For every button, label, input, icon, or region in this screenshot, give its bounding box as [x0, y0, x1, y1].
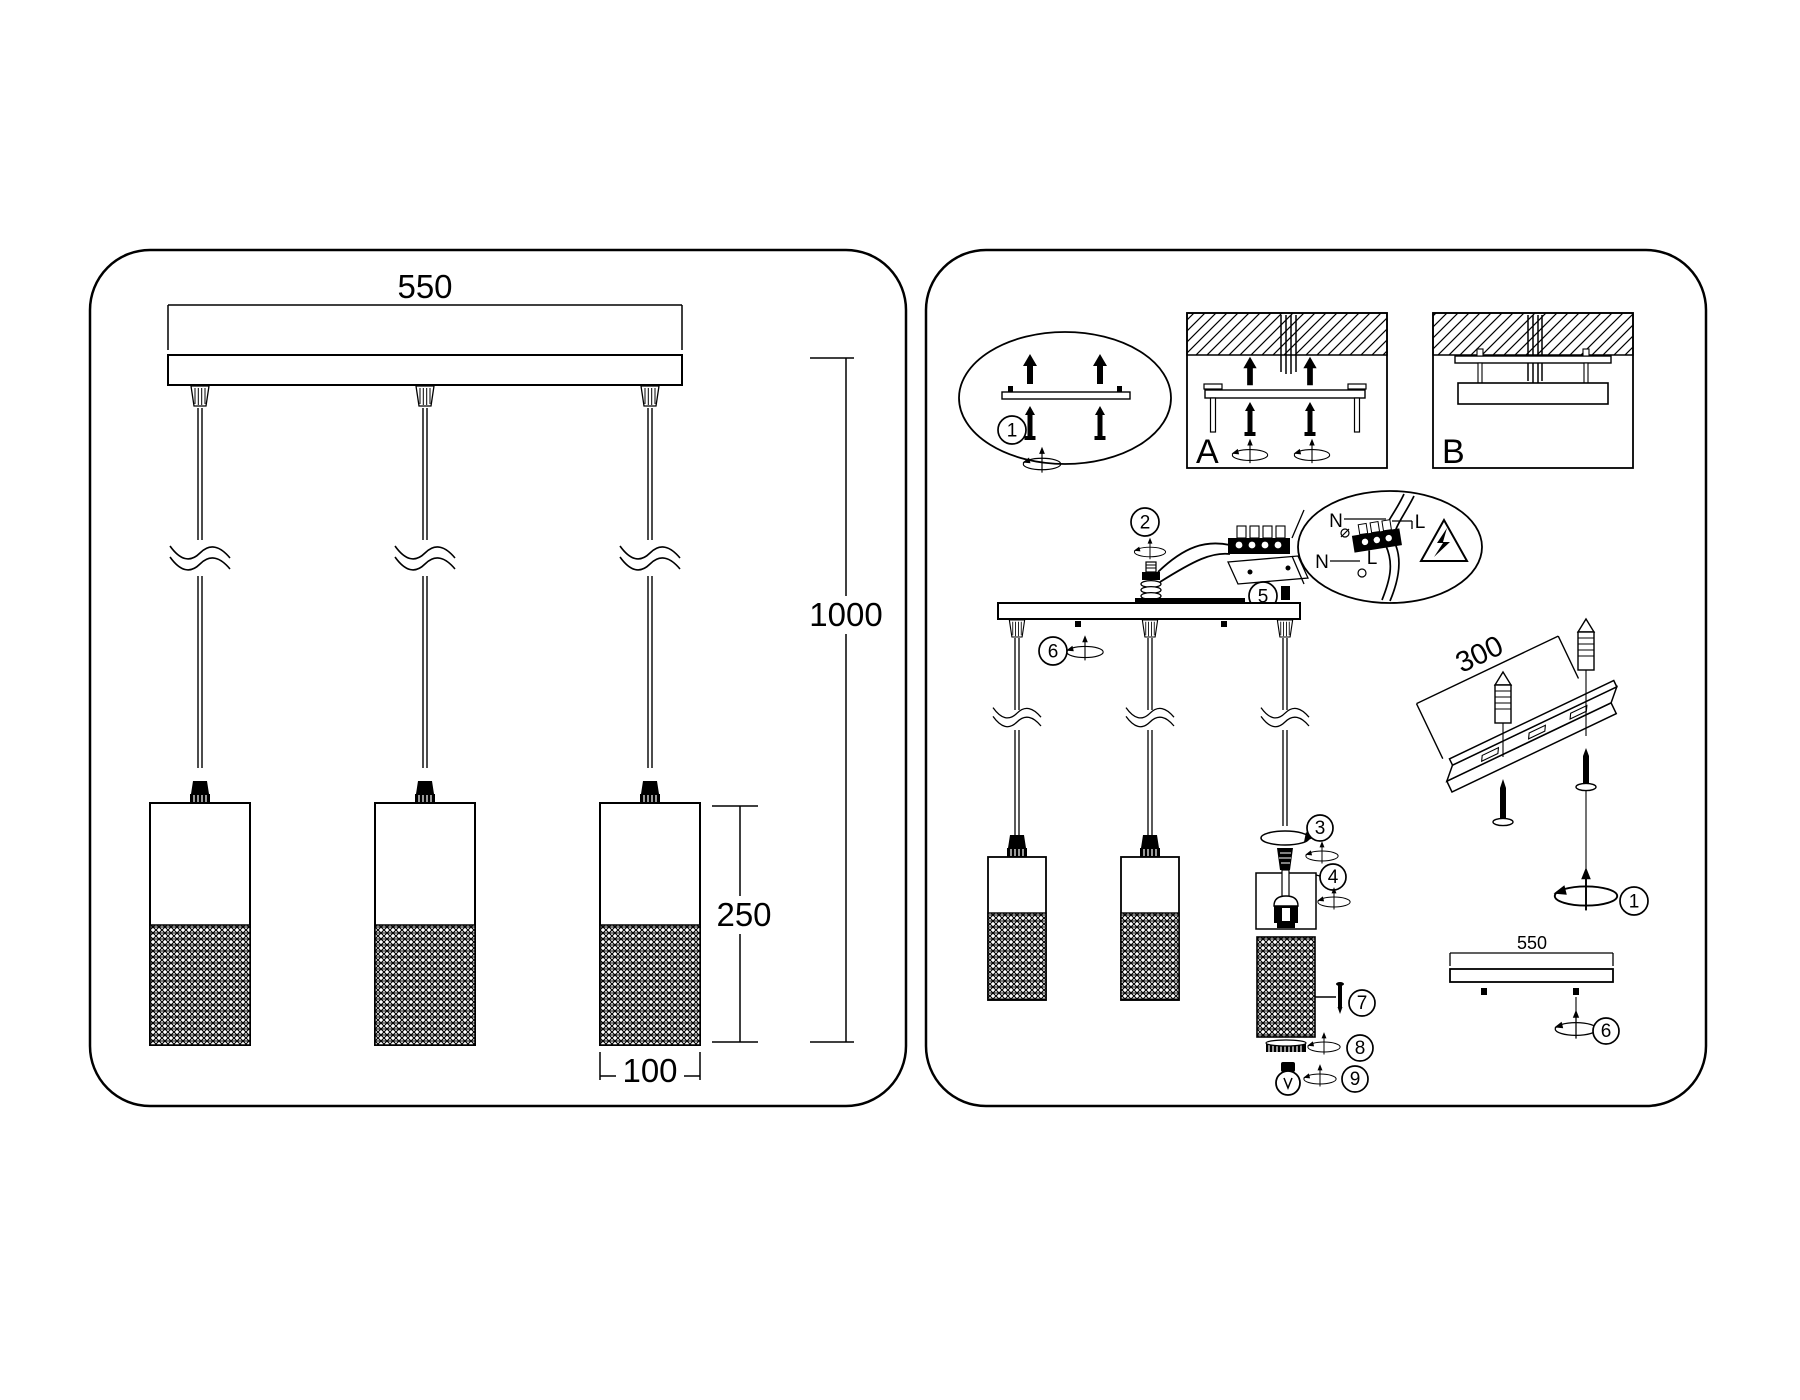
mount-a-label: A — [1196, 433, 1219, 471]
svg-text:6: 6 — [1048, 642, 1059, 663]
step-marker-rail-1: 1 — [1620, 887, 1648, 915]
wiring-live-bottom-label: L — [1367, 548, 1378, 569]
mount-b-label: B — [1442, 433, 1465, 471]
step-marker-2: 2 — [1131, 508, 1159, 536]
dim-width-label: 550 — [397, 268, 452, 305]
wiring-neutral-top-label: N — [1329, 511, 1343, 532]
step-marker-9: 9 — [1342, 1066, 1368, 1092]
dim-height-label: 1000 — [809, 596, 882, 633]
canopy-mounted — [1458, 383, 1608, 404]
step-marker-7: 7 — [1349, 990, 1375, 1016]
svg-text:3: 3 — [1315, 818, 1326, 839]
step-marker-3: 3 — [1307, 815, 1333, 841]
step-marker-8: 8 — [1347, 1035, 1373, 1061]
shade-mesh — [150, 925, 250, 1045]
dim-shade-height-label: 250 — [716, 896, 771, 933]
svg-text:1: 1 — [1629, 892, 1640, 913]
svg-text:4: 4 — [1328, 867, 1339, 888]
shade-mesh-exploded — [1257, 937, 1315, 1037]
step-marker-6: 6 — [1039, 637, 1067, 665]
ceiling-hatch — [1187, 313, 1387, 355]
drawing-svg: 550 250 1000 — [0, 0, 1800, 1400]
retaining-ring — [1266, 1040, 1306, 1052]
svg-text:2: 2 — [1140, 513, 1151, 534]
dim-shade-width-label: 100 — [622, 1052, 677, 1089]
svg-text:6: 6 — [1601, 1021, 1612, 1042]
wiring-live-top-label: L — [1415, 512, 1426, 533]
mount-option-a: A — [1187, 313, 1387, 471]
canopy-bar-front — [168, 355, 682, 385]
svg-text:7: 7 — [1357, 993, 1368, 1014]
instruction-sheet: 550 250 1000 — [0, 0, 1800, 1400]
dim-bracket-label: 550 — [1517, 933, 1547, 953]
step-marker-bracket-6: 6 — [1593, 1018, 1619, 1044]
svg-text:9: 9 — [1350, 1069, 1361, 1090]
svg-text:1: 1 — [1007, 421, 1018, 442]
shade-mesh — [375, 925, 475, 1045]
step-marker-4: 4 — [1320, 864, 1346, 890]
step-marker-1: 1 — [998, 416, 1026, 444]
svg-text:8: 8 — [1355, 1038, 1366, 1059]
mount-option-b: B — [1433, 313, 1633, 471]
shade-mesh — [600, 925, 700, 1045]
wiring-neutral-bottom-label: N — [1315, 552, 1329, 573]
